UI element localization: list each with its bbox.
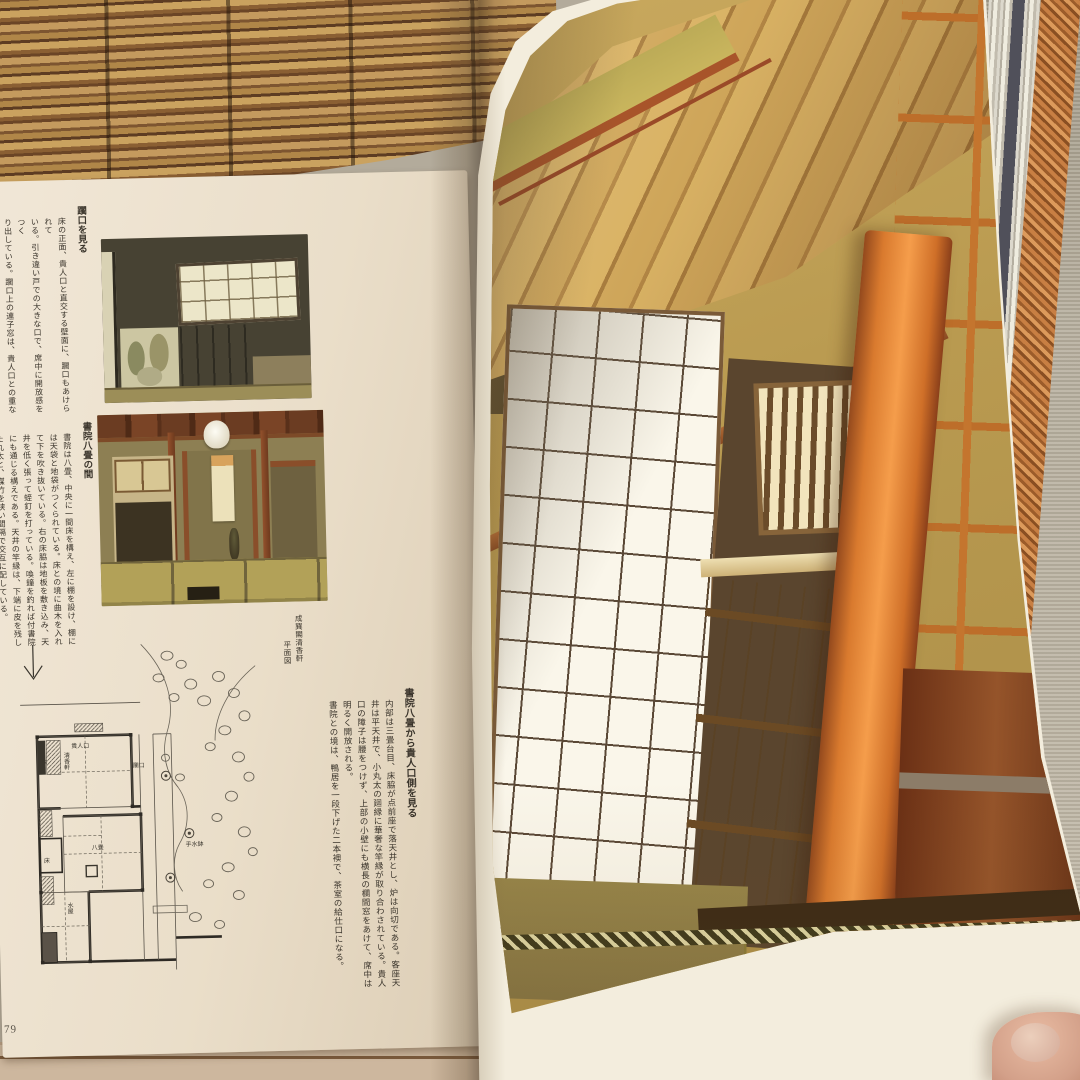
side-alcove bbox=[270, 460, 318, 560]
dark-wood-sill bbox=[698, 887, 1080, 934]
lower-olive-wall bbox=[478, 877, 748, 1006]
renji-window bbox=[175, 257, 300, 325]
tokonoma-alcove bbox=[182, 450, 259, 566]
north-arrow bbox=[24, 645, 43, 679]
lower-wall bbox=[253, 355, 312, 386]
plan-label-toko-top: 床 bbox=[41, 759, 47, 767]
floor-plan-svg: 床 清香軒 貴人口 躙口 八畳 床 水屋 手水鉢 bbox=[17, 636, 263, 976]
ceiling-beam bbox=[453, 324, 949, 566]
large-shoji-screen bbox=[485, 304, 725, 939]
facing-photo-caption: 書院八畳から貴人口側を見る 内部は三畳台目、床脇が点前座で落天井とし、炉は向切で… bbox=[292, 688, 425, 991]
page-curve-shading bbox=[462, 0, 1080, 1080]
book-spread-photo: 躙口を見る 床の正面、貴人口と直交する壁面に、躙口もあけられて いる。引き違い戸… bbox=[0, 0, 1080, 1080]
right-page bbox=[462, 0, 1080, 1080]
open-shelf bbox=[115, 501, 173, 567]
body-column: 床の正面、貴人口と直交する壁面に、躙口もあけられて bbox=[41, 206, 73, 419]
wood-post bbox=[260, 430, 270, 573]
wooden-sliding-doors bbox=[678, 578, 840, 936]
hanging-scroll bbox=[211, 455, 235, 522]
painted-screen bbox=[120, 328, 179, 392]
doorway-wall bbox=[688, 358, 914, 956]
flower-arrangement bbox=[229, 528, 240, 560]
plan-label-mizuya: 水屋 bbox=[66, 901, 73, 915]
tatami-border-band bbox=[621, 975, 1080, 1015]
slatted-transom-window bbox=[753, 379, 894, 536]
tana-shelf-unit bbox=[112, 455, 176, 571]
wall-shelf bbox=[478, 244, 552, 414]
tea-room-photo-shoin bbox=[97, 410, 328, 606]
chozubachi-basin bbox=[185, 829, 194, 838]
left-page: 躙口を見る 床の正面、貴人口と直交する壁面に、躙口もあけられて いる。引き違い戸… bbox=[0, 170, 489, 1058]
sunlit-orange-pillar bbox=[791, 230, 953, 1080]
thumb-nail bbox=[1011, 1023, 1061, 1063]
plan-label-toko-mid: 床 bbox=[44, 857, 50, 865]
wood-plank-ceiling bbox=[450, 0, 1030, 446]
section-shoin-hachijo: 書院八畳の間 書院は八畳、中央に一間床を構え、左に棚を設け、棚に は天袋と地袋が… bbox=[0, 421, 101, 652]
plan-label-kininguchi: 貴人口 bbox=[71, 742, 89, 750]
wood-lintel bbox=[700, 549, 907, 578]
page-number: 79 bbox=[4, 1023, 17, 1035]
shoji-sliver bbox=[101, 252, 119, 390]
wooden-door bbox=[179, 324, 249, 390]
photo-base bbox=[462, 0, 1080, 1080]
painting-rock bbox=[137, 367, 163, 386]
caption-heading: 書院八畳から貴人口側を見る bbox=[400, 688, 422, 988]
section-heading: 書院八畳の間 bbox=[77, 421, 98, 649]
plan-label-hachijo: 八畳 bbox=[92, 844, 104, 851]
tatami-border-band bbox=[451, 919, 1080, 951]
plan-label-seikoken: 清香軒 bbox=[62, 751, 69, 771]
floor-plan: 床 清香軒 貴人口 躙口 八畳 床 水屋 手水鉢 bbox=[17, 636, 263, 976]
section-heading: 躙口を見る bbox=[72, 205, 92, 417]
plan-label-chozubachi: 手水鉢 bbox=[186, 840, 204, 848]
tea-room-photo-nijiriguchi bbox=[101, 234, 312, 403]
plan-label-nijiriguchi: 躙口 bbox=[133, 762, 145, 769]
tea-room-photo-large bbox=[462, 0, 1080, 1080]
tatami-floor bbox=[451, 929, 1080, 1080]
section-nijiriguchi: 躙口を見る 床の正面、貴人口と直交する壁面に、躙口もあけられて いる。引き違い戸… bbox=[0, 205, 95, 419]
sunken-hearth bbox=[187, 586, 219, 600]
tenbukuro-cabinet bbox=[114, 459, 171, 492]
paper-lantern bbox=[203, 420, 230, 449]
body-column: いる。引き違い戸での大きな口で、席中に開放感をつく bbox=[14, 207, 46, 420]
